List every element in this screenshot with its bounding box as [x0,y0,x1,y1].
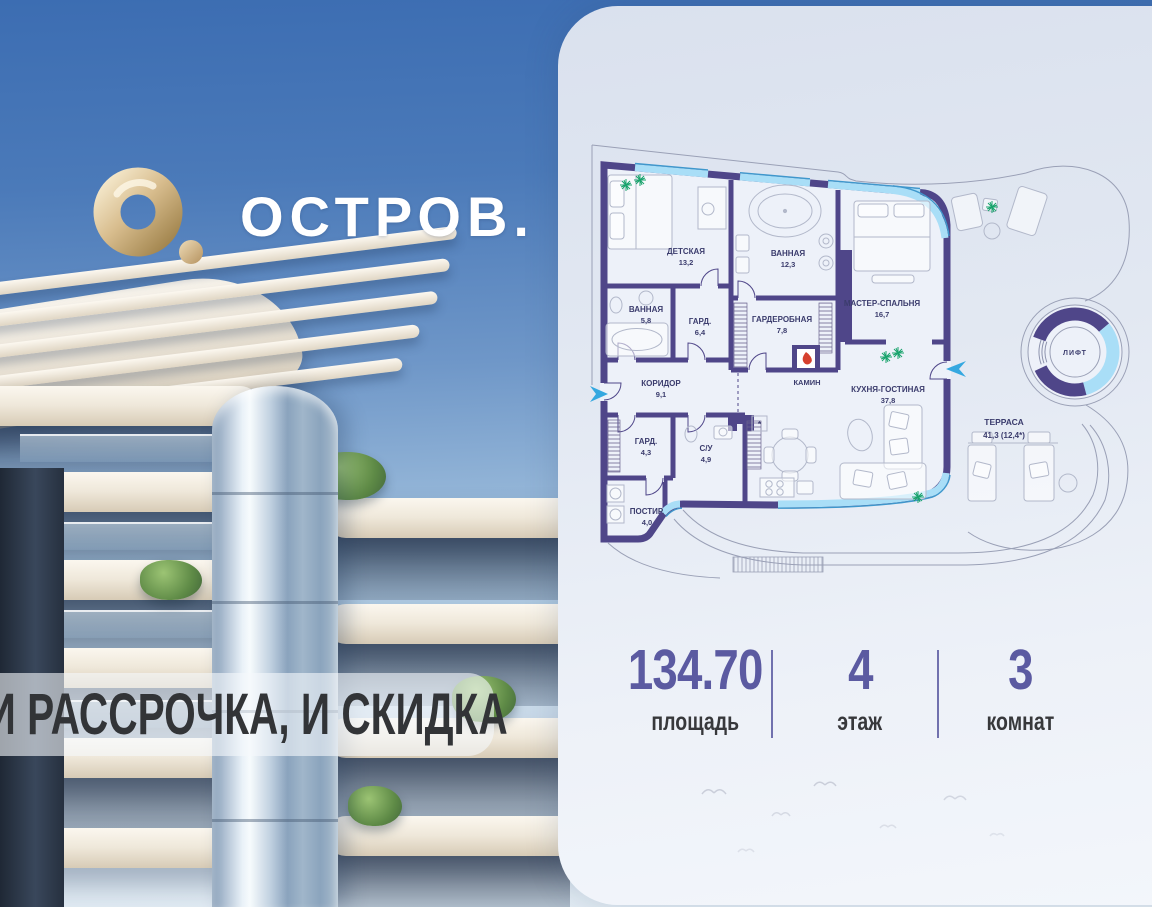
logo-torus-icon [90,164,210,268]
room-label-bathroom-small: ВАННАЯ [629,305,663,314]
room-label-fireplace: КАМИН [793,378,820,387]
facade-glass [330,536,570,600]
stat-rooms-label: комнат [986,708,1054,737]
ad-canvas: ОСТРОВ. И РАССРОЧКА, И СКИДКА [0,0,1152,907]
room-area-kitchen: 37,8 [881,396,896,405]
logo: ОСТРОВ. [90,164,535,268]
room-area-wc: 4,9 [701,455,711,464]
room-label-master: МАСТЕР-СПАЛЬНЯ [844,299,921,308]
room-area-master: 16,7 [875,310,890,319]
stat-area-value: 134.70 [628,640,763,700]
greenery [140,560,202,600]
glass-elevator-floors [212,386,338,907]
room-label-wc: С/У [700,444,714,453]
room-area-terrace: 41,3 (12,4*) [983,431,1025,440]
room-area-bathroom-small: 5,8 [641,316,651,325]
room-area-wardrobe-64: 6,4 [695,328,706,337]
info-card: ДЕТСКАЯ 13,2 ВАННАЯ 12,3 МАСТЕР-СПАЛЬНЯ … [558,6,1152,905]
room-label-kitchen: КУХНЯ-ГОСТИНАЯ [851,385,925,394]
stats-divider [771,650,773,738]
room-label-wardrobe-64: ГАРД. [689,317,712,326]
room-label-wardrobe-43: ГАРД. [635,437,658,446]
balcony-slab [326,604,576,644]
birds-decoration [642,764,1062,884]
logo-text: ОСТРОВ. [240,184,535,249]
balcony-slab [326,498,576,538]
master-closet-wall [836,250,852,342]
room-label-terrace: ТЕРРАСА [984,417,1023,427]
room-area-nursery: 13,2 [679,258,694,267]
room-area-corridor: 9,1 [656,390,666,399]
stat-rooms: 3 комнат [935,640,1105,737]
stat-floor-value: 4 [848,640,873,700]
room-label-bathroom-main: ВАННАЯ [771,249,805,258]
room-label-nursery: ДЕТСКАЯ [667,247,705,256]
room-label-corridor: КОРИДОР [641,379,681,388]
floor-plan: ДЕТСКАЯ 13,2 ВАННАЯ 12,3 МАСТЕР-СПАЛЬНЯ … [588,133,1138,583]
stat-area: 134.70 площадь [610,640,780,737]
stat-rooms-value: 3 [1008,640,1033,700]
roof-beam [0,324,420,390]
room-label-laundry: ПОСТИР. [630,507,665,516]
balcony-railing [20,434,230,462]
room-area-wardrobe-43: 4,3 [641,448,651,457]
room-label-lift: ЛИФТ [1063,350,1087,357]
stat-floor: 4 этаж [775,640,945,737]
fireplace-icon [792,345,820,372]
promo-banner: И РАССРОЧКА, И СКИДКА [0,673,494,756]
stat-floor-label: этаж [838,708,883,737]
room-area-dressing: 7,8 [777,326,787,335]
promo-banner-text: И РАССРОЧКА, И СКИДКА [0,681,508,748]
room-area-bathroom-main: 12,3 [781,260,796,269]
facade-louver-strip [733,557,823,572]
stat-area-label: площадь [651,708,739,737]
facade-glass [330,852,570,907]
room-area-laundry: 4,0 [642,518,652,527]
apartment-stats: 134.70 площадь 4 этаж 3 комнат [588,640,1128,760]
room-label-dressing: ГАРДЕРОБНАЯ [752,315,812,324]
greenery [348,786,402,826]
